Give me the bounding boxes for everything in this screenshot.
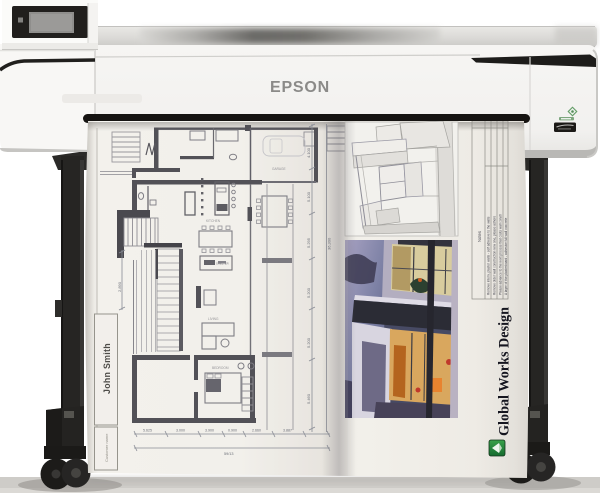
svg-text:Notes: Notes [477, 231, 482, 242]
svg-text:Remove older wall construction: Remove older wall construction new one, … [493, 216, 497, 295]
svg-text:EPSON: EPSON [270, 79, 330, 96]
svg-text:A layer of the plasterboard -: A layer of the plasterboard - adhesive f… [504, 218, 508, 295]
svg-text:Please advance to the next pro: Please advance to the next process that … [499, 213, 503, 295]
svg-text:Global Works Design: Global Works Design [497, 307, 513, 436]
svg-text:Remove intern. plaster walls -: Remove intern. plaster walls - self adhe… [487, 216, 491, 295]
